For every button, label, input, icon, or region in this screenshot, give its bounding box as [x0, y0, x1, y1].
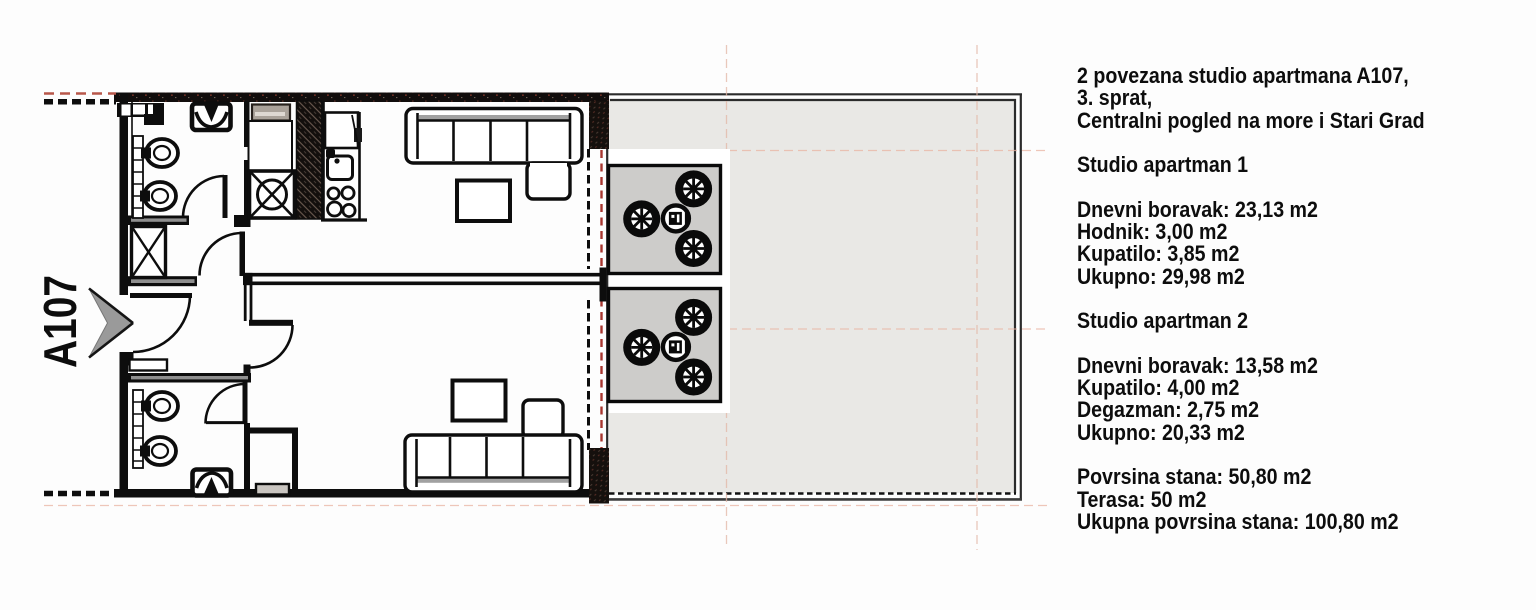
- svg-text:A107: A107: [34, 275, 86, 368]
